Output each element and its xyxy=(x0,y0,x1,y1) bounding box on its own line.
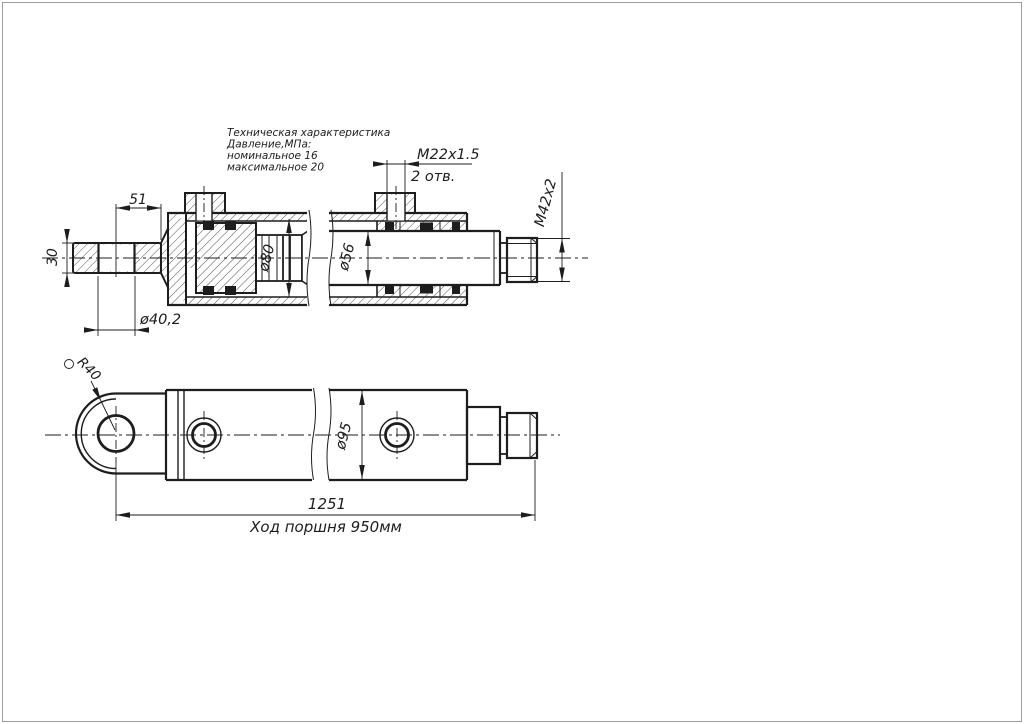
drawing-sheet: 51 30 ø40,2 ø80 ø56 М42х2 М22х1.5 xyxy=(0,0,1024,724)
sheet-border xyxy=(3,3,1022,722)
label-outer-diameter: ø95 xyxy=(333,421,356,453)
label-pin-width: 30 xyxy=(45,248,61,266)
label-port-thread: М22х1.5 xyxy=(417,147,480,163)
outline-eye xyxy=(76,394,166,474)
label-pin-offset: 51 xyxy=(129,192,147,208)
label-eye-radius: R40 xyxy=(74,354,104,384)
section-view xyxy=(42,186,588,309)
tech-spec-line-2: Давление,МПа: xyxy=(226,139,311,151)
tech-spec-line-4: максимальное 20 xyxy=(227,162,324,174)
label-port-count: 2 отв. xyxy=(411,169,455,185)
label-cylinder-bore: ø80 xyxy=(256,243,279,275)
tech-spec-line-1: Техническая характеристика xyxy=(227,127,390,139)
section-cap xyxy=(168,213,195,305)
technical-spec: Техническая характеристика Давление,МПа:… xyxy=(226,127,390,174)
r40-mark xyxy=(65,360,74,369)
label-overall-length: 1251 xyxy=(308,495,346,513)
label-piston-stroke: Ход поршня 950мм xyxy=(249,518,402,536)
cylinder-drawing: 51 30 ø40,2 ø80 ø56 М42х2 М22х1.5 xyxy=(0,0,1024,724)
label-pin-bore: ø40,2 xyxy=(139,312,181,328)
tech-spec-line-3: номинальное 16 xyxy=(227,150,318,162)
outline-rod-end xyxy=(467,407,537,464)
outline-dimensions: ø95 R40 1251 Ход поршня 950мм xyxy=(65,354,536,536)
label-rod-thread: М42х2 xyxy=(532,177,560,228)
outline-view xyxy=(45,385,560,485)
